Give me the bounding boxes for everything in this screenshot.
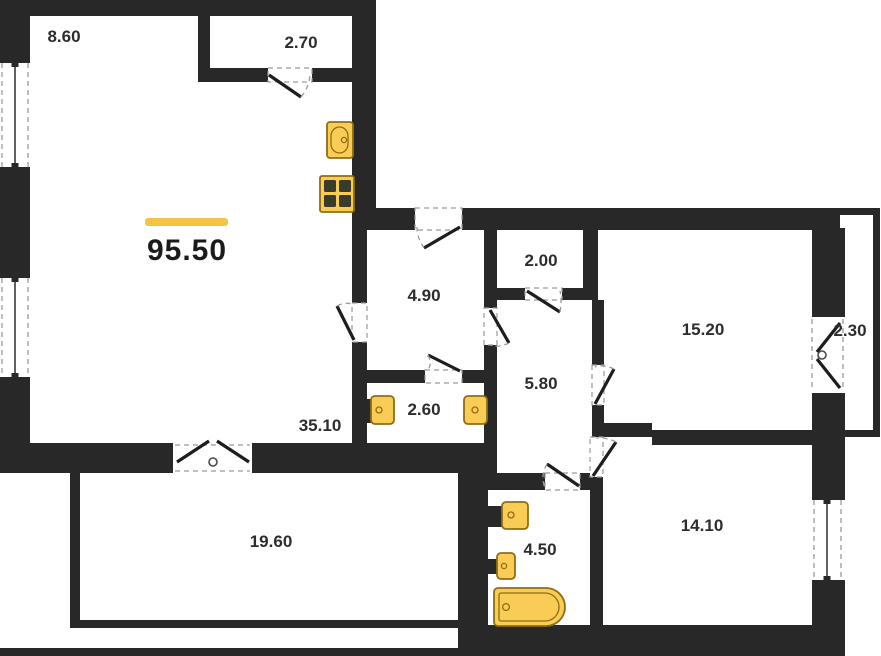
door-swing [425, 355, 462, 383]
wall-segment [352, 370, 425, 383]
total-area-label: 95.50 [147, 234, 227, 268]
floor-plan: 95.50 8.60 2.70 4.90 2.00 15.20 2.30 5.8… [0, 0, 881, 656]
walls [0, 0, 880, 656]
room-area-label-wc: 2.60 [407, 400, 440, 420]
wall-segment [352, 230, 367, 303]
toilet-icon [488, 553, 515, 579]
french-door [175, 441, 250, 471]
wall-segment [252, 443, 488, 473]
wall-segment [0, 167, 30, 278]
room-area-label-entry-hall: 4.90 [407, 286, 440, 306]
wall-segment [812, 228, 845, 317]
washbasin-icon [488, 502, 528, 529]
wall-segment [198, 16, 210, 76]
room-area-label-storage: 2.00 [524, 251, 557, 271]
window [2, 275, 28, 380]
wall-segment [312, 68, 355, 82]
wall-segment [812, 580, 845, 656]
room-area-label-bedroom-bottom: 14.10 [681, 516, 724, 536]
wall-segment [873, 208, 880, 437]
room-area-label-bathroom: 4.50 [523, 540, 556, 560]
floor-plan-drawing [0, 0, 881, 656]
room-area-label-terrace: 19.60 [250, 532, 293, 552]
door-swing [268, 68, 312, 97]
door-swing [592, 365, 614, 405]
wall-segment [458, 625, 843, 656]
door-swing [590, 437, 616, 477]
wall-segment [462, 208, 840, 230]
washbasin-icon [355, 396, 394, 424]
wall-segment [845, 430, 880, 437]
wall-segment [70, 620, 463, 628]
wall-segment [497, 288, 525, 300]
wall-segment [0, 443, 173, 473]
wall-segment [352, 342, 367, 447]
wall-segment [583, 228, 598, 288]
room-area-label-living: 35.10 [299, 416, 342, 436]
door-swing [525, 288, 562, 312]
total-area-underline [145, 218, 228, 226]
toilet-icon [464, 396, 487, 424]
wall-segment [812, 393, 845, 500]
room-area-label-corridor: 5.80 [524, 374, 557, 394]
bathtub-icon [494, 588, 565, 626]
door-swing [484, 308, 509, 346]
room-area-label-top-left: 8.60 [47, 27, 80, 47]
wall-segment [562, 288, 598, 300]
room-area-label-balcony: 2.30 [833, 321, 866, 341]
wall-segment [70, 473, 80, 627]
kitchen-sink-icon [327, 122, 353, 158]
window [814, 497, 841, 583]
door-swing [337, 303, 367, 342]
wall-segment [198, 68, 268, 82]
door-knob [818, 351, 826, 359]
wall-segment [484, 228, 497, 308]
door-swing [543, 464, 580, 490]
wall-segment [488, 473, 545, 490]
stove-icon [320, 176, 354, 212]
wall-segment [0, 0, 376, 16]
wall-segment [592, 300, 604, 365]
door-knob [209, 458, 217, 466]
entry-door-swing [415, 208, 462, 248]
room-area-label-bedroom-right: 15.20 [682, 320, 725, 340]
room-area-label-closet: 2.70 [284, 33, 317, 53]
wall-segment [484, 345, 497, 383]
window [2, 60, 28, 170]
wall-segment [592, 423, 652, 437]
wall-segment [376, 208, 415, 230]
doors [175, 68, 843, 490]
wall-segment [0, 377, 30, 443]
wall-segment [352, 0, 376, 230]
wall-segment [0, 648, 460, 656]
wall-segment [652, 430, 812, 445]
wall-segment [0, 0, 30, 63]
